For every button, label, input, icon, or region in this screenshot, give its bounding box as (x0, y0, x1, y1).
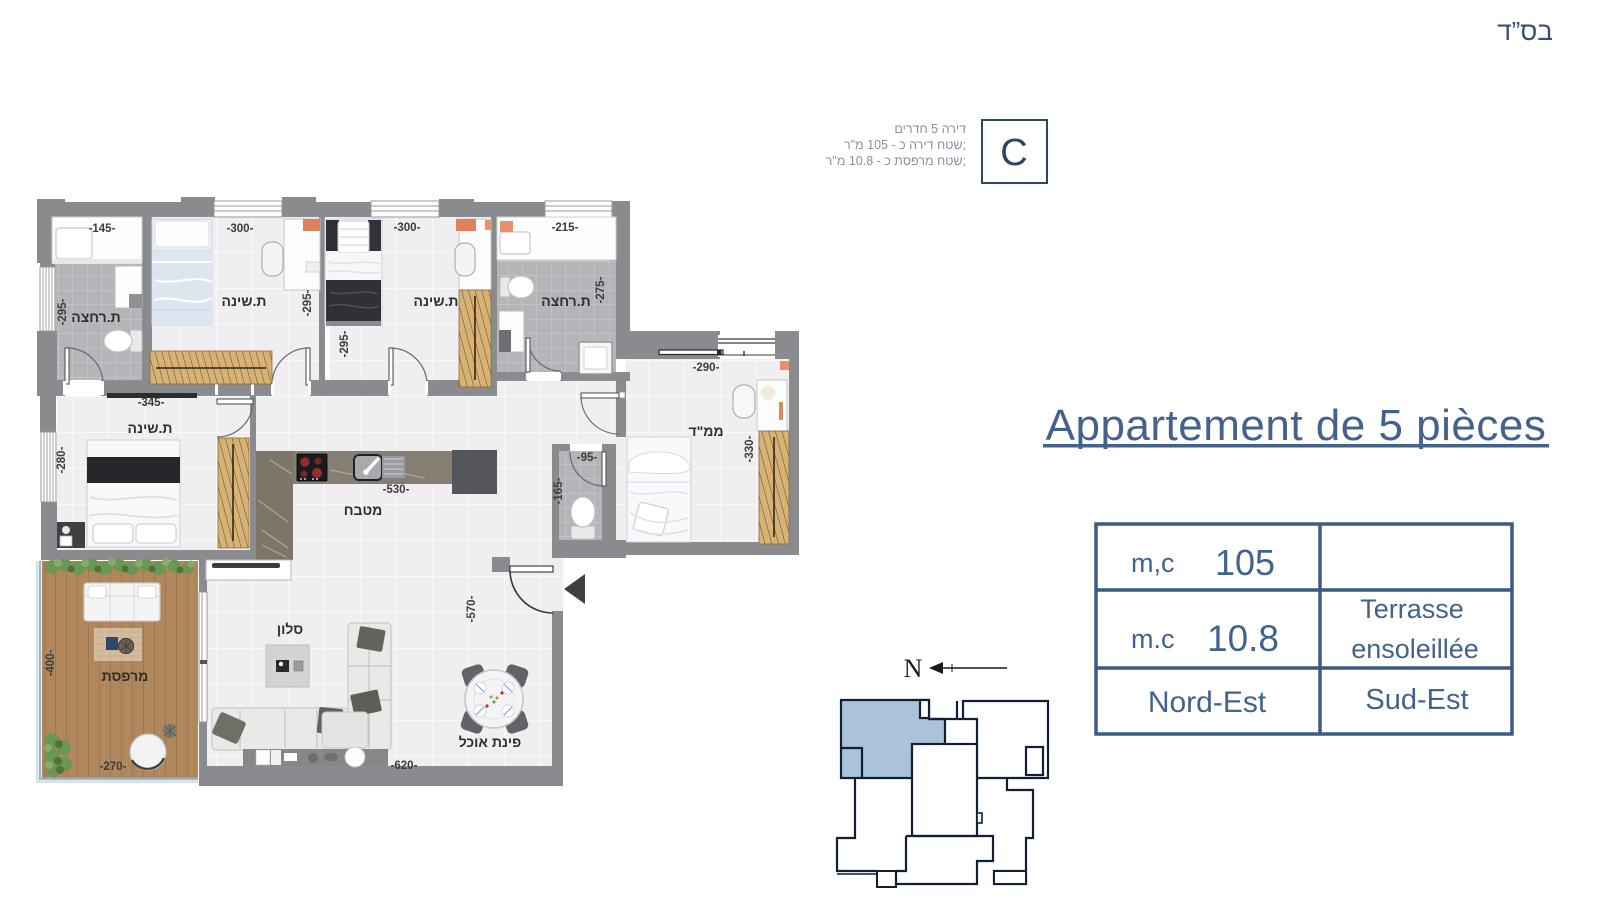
svg-text:N: N (904, 654, 923, 683)
svg-text:-290-: -290- (693, 362, 720, 374)
svg-text:-145-: -145- (89, 223, 116, 235)
svg-text:מרפסת: מרפסת (102, 668, 149, 684)
svg-text:Terrasse: Terrasse (1360, 594, 1464, 624)
svg-text:-295-: -295- (302, 289, 314, 316)
svg-text:Sud-Est: Sud-Est (1365, 684, 1468, 716)
svg-text:-300-: -300- (227, 223, 254, 235)
svg-text:פינת אוכל: פינת אוכל (459, 734, 522, 750)
svg-text:ת.רחצה: ת.רחצה (71, 309, 120, 325)
svg-text:ת.שינה: ת.שינה (128, 420, 173, 436)
svg-text:מטבח: מטבח (344, 502, 383, 518)
svg-text:ת.רחצה: ת.רחצה (541, 293, 590, 309)
svg-text:-280-: -280- (56, 446, 68, 473)
svg-text:שטח מרפסת כ - 10.8 מ"ר;: שטח מרפסת כ - 10.8 מ"ר; (826, 154, 966, 168)
svg-text:-620-: -620- (391, 760, 418, 772)
svg-text:-270-: -270- (100, 761, 127, 773)
svg-text:סלון: סלון (277, 621, 303, 637)
svg-text:m.c: m.c (1131, 624, 1175, 654)
svg-text:ממ"ד: ממ"ד (688, 423, 723, 439)
svg-text:-275-: -275- (595, 276, 607, 303)
svg-text:-215-: -215- (552, 222, 579, 234)
svg-text:שטח דירה כ - 105 מ"ר;: שטח דירה כ - 105 מ"ר; (844, 138, 966, 152)
svg-text:-330-: -330- (744, 435, 756, 462)
svg-text:-295-: -295- (57, 298, 69, 325)
svg-text:-95-: -95- (577, 452, 598, 464)
svg-text:-165-: -165- (553, 477, 565, 504)
svg-text:105: 105 (1215, 542, 1275, 583)
svg-text:Nord-Est: Nord-Est (1148, 686, 1267, 719)
svg-text:ת.שינה: ת.שינה (222, 293, 267, 309)
svg-text:-400-: -400- (45, 649, 57, 676)
svg-text:10.8: 10.8 (1207, 618, 1279, 659)
svg-text:-570-: -570- (466, 595, 478, 622)
svg-text:ensoleillée: ensoleillée (1351, 634, 1479, 664)
svg-text:-295-: -295- (339, 330, 351, 357)
svg-text:-300-: -300- (394, 222, 421, 234)
svg-text:Appartement de 5 pièces: Appartement de 5 pièces (1046, 401, 1547, 450)
svg-text:C: C (1000, 132, 1027, 174)
svg-text:-530-: -530- (383, 484, 410, 496)
svg-text:-345-: -345- (138, 397, 165, 409)
svg-text:דירה 5 חדרים: דירה 5 חדרים (894, 122, 966, 136)
svg-text:ת.שינה: ת.שינה (414, 293, 459, 309)
svg-text:בס”ד: בס”ד (1497, 16, 1553, 46)
svg-text:m,c: m,c (1131, 548, 1175, 578)
